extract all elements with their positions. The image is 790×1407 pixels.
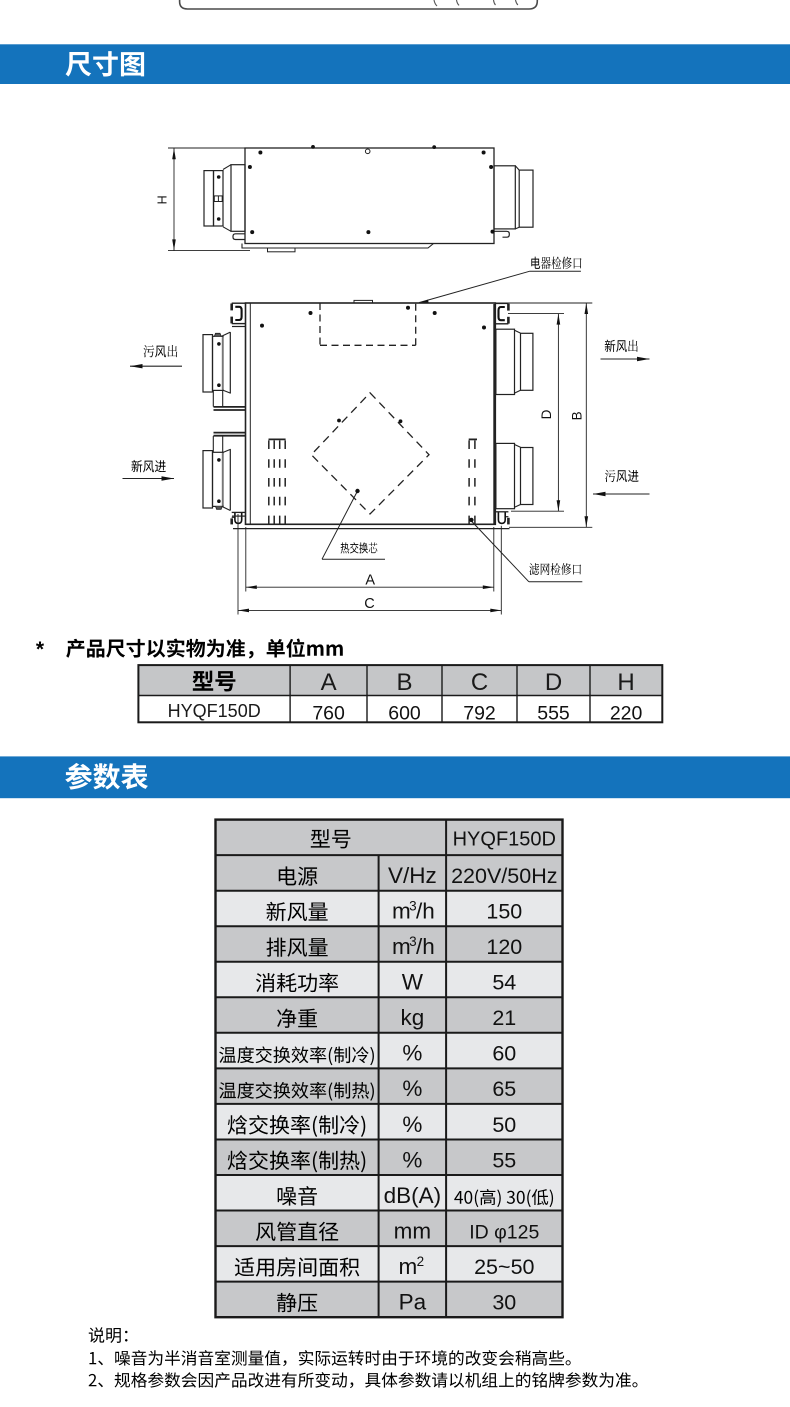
svg-text:60: 60 (492, 1042, 516, 1066)
svg-text:m: m (392, 934, 411, 959)
svg-text:%: % (402, 1041, 422, 1066)
svg-text:HYQF150D: HYQF150D (453, 829, 556, 851)
svg-text:120: 120 (486, 935, 522, 959)
svg-text:54: 54 (492, 971, 516, 995)
svg-text:600: 600 (388, 703, 421, 725)
svg-text:W: W (402, 970, 424, 995)
svg-text:65: 65 (492, 1077, 516, 1101)
svg-text:50: 50 (492, 1113, 516, 1137)
svg-text:2: 2 (417, 1254, 425, 1269)
svg-text:150: 150 (486, 900, 522, 924)
svg-text:%: % (402, 1147, 422, 1172)
svg-text:ID φ125: ID φ125 (469, 1221, 539, 1243)
svg-text:HYQF150D: HYQF150D (168, 701, 261, 721)
svg-text:kg: kg (401, 1005, 425, 1030)
svg-text:30: 30 (492, 1291, 516, 1315)
svg-text:H: H (155, 195, 169, 204)
svg-text:dB(A): dB(A) (384, 1183, 442, 1208)
svg-text:760: 760 (312, 703, 345, 725)
svg-text:H: H (617, 669, 634, 696)
svg-text:555: 555 (537, 703, 570, 725)
svg-text:m: m (392, 899, 411, 924)
svg-text:%: % (402, 1076, 422, 1101)
svg-text:D: D (545, 669, 562, 696)
svg-text:A: A (321, 669, 337, 696)
svg-text:B: B (570, 411, 585, 420)
svg-text:C: C (364, 596, 374, 612)
svg-text:55: 55 (492, 1148, 516, 1172)
svg-text:%: % (402, 1112, 422, 1137)
svg-text:25~50: 25~50 (474, 1255, 534, 1279)
svg-text:A: A (365, 573, 375, 589)
svg-text:Pa: Pa (399, 1290, 427, 1315)
svg-text:21: 21 (492, 1006, 516, 1030)
svg-text:792: 792 (463, 703, 496, 725)
svg-text:D: D (539, 409, 554, 419)
svg-text:220V/50Hz: 220V/50Hz (451, 864, 557, 888)
svg-text:/h: /h (416, 899, 435, 924)
svg-text:B: B (396, 669, 412, 696)
svg-text:*: * (36, 638, 45, 661)
svg-text:220: 220 (610, 703, 643, 725)
svg-text:V/Hz: V/Hz (388, 863, 437, 888)
svg-text:m: m (399, 1254, 418, 1279)
svg-text:C: C (471, 669, 488, 696)
svg-text:/h: /h (416, 934, 435, 959)
svg-text:mm: mm (394, 1218, 432, 1243)
